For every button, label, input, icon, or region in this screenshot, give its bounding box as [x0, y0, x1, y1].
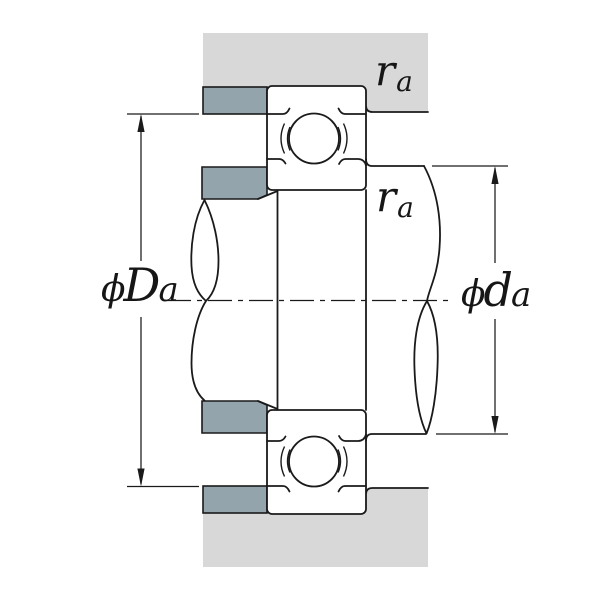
bearing-mounting-diagram: ϕDa ϕda ra ra — [0, 0, 600, 600]
fillet-label-shaft: ra — [376, 172, 412, 224]
dim-label-da: ϕda — [461, 263, 529, 317]
shaft-shoulder-surface-bottom — [366, 434, 426, 441]
dim-letter: D — [123, 258, 160, 312]
ball-top — [289, 114, 339, 164]
dim-letter: d — [484, 263, 512, 317]
arrowhead-down-icon — [137, 469, 144, 487]
arrowhead-down-icon — [491, 416, 498, 434]
housing-shoulder-top — [203, 87, 267, 114]
arrowhead-up-icon — [137, 114, 144, 132]
shaft-break-right — [414, 166, 440, 434]
dim-subscript: a — [397, 191, 412, 224]
shaft-shoulder-surface-top — [366, 159, 424, 166]
shaft-spacer-bottom — [202, 401, 267, 433]
ball-bottom — [289, 437, 339, 487]
dim-letter: r — [376, 172, 399, 221]
dim-subscript: a — [158, 270, 176, 310]
phi-symbol: ϕ — [461, 274, 485, 315]
dim-subscript: a — [511, 275, 529, 315]
bearing-section-top — [267, 86, 366, 190]
dim-subscript: a — [396, 65, 411, 98]
housing-shoulder-bottom — [203, 486, 267, 513]
arrowhead-up-icon — [491, 166, 498, 184]
bearing-section-bottom — [267, 410, 366, 514]
phi-symbol: ϕ — [101, 269, 125, 310]
dim-label-Da: ϕDa — [101, 258, 177, 312]
shaft-spacer-top — [202, 167, 267, 199]
diagram-canvas: ϕDa ϕda ra ra — [0, 0, 600, 600]
